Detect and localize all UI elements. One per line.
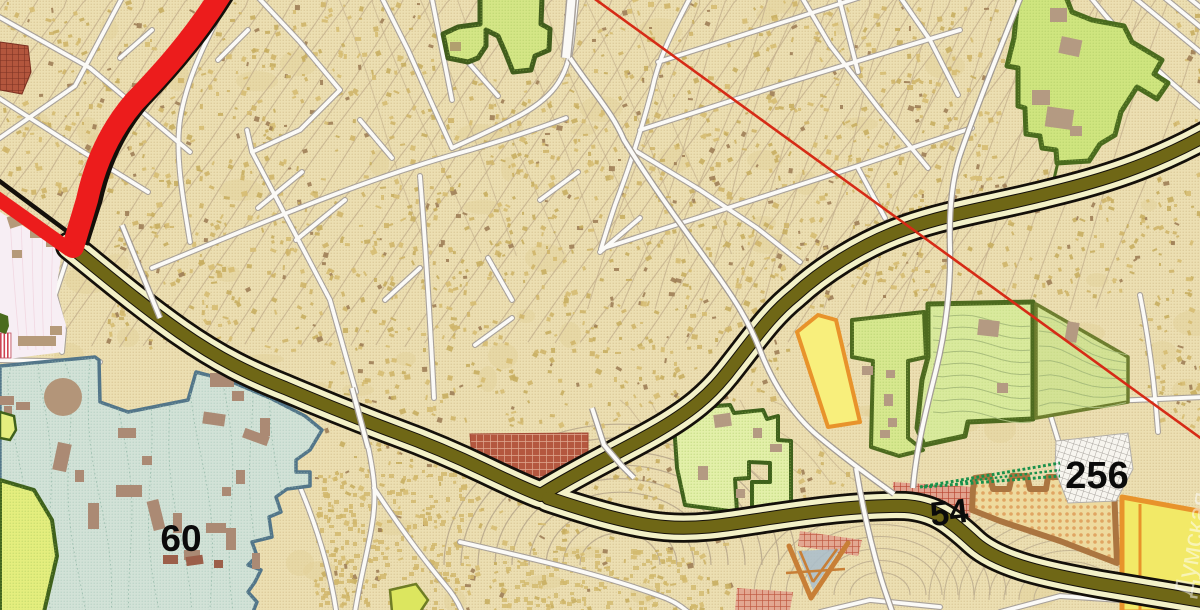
svg-text:60: 60 — [160, 518, 201, 559]
svg-text:54: 54 — [928, 492, 970, 534]
svg-text:256: 256 — [1065, 455, 1128, 497]
